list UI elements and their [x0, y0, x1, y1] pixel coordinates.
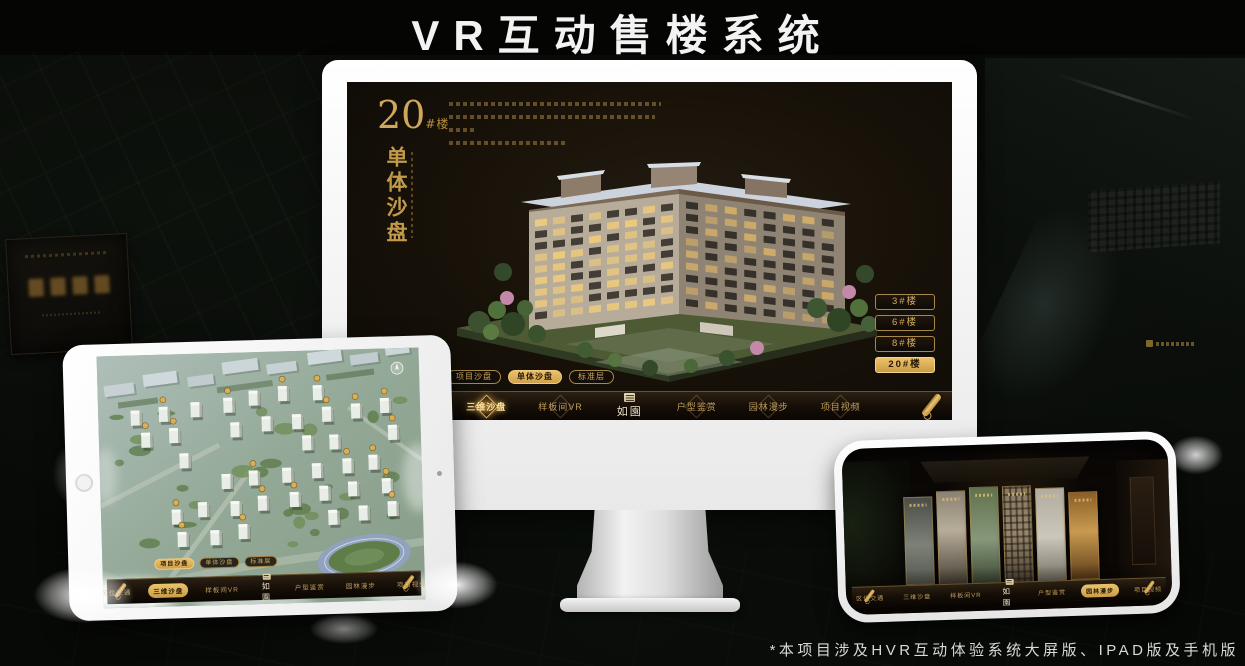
pill-project-sandbox[interactable]: 项目沙盘	[154, 558, 194, 570]
phone-device: 区位交通 三维沙盘 样板间VR 如園 户型鉴赏 园林漫步 项目视频	[833, 431, 1181, 624]
pill-standard-floor[interactable]: 标准层	[569, 370, 614, 384]
nav-item-model-room-vr[interactable]: 样板间VR	[534, 398, 587, 415]
nav-item-garden-walk[interactable]: 园林漫步	[342, 578, 380, 593]
cloud	[14, 556, 154, 634]
scroll-menu-icon[interactable]	[918, 393, 944, 419]
nav-item-project-video[interactable]: 项目视频	[817, 398, 865, 415]
nav-item-floorplan[interactable]: 户型鉴赏	[1034, 585, 1070, 599]
cloud	[296, 608, 392, 650]
seal-icon	[262, 573, 270, 579]
tablet-screen: 项目沙盘 单体沙盘 标准层 区位交通 三维沙盘 样板间VR 如園 户型鉴赏 园林…	[97, 348, 426, 609]
panel-caption	[1074, 499, 1091, 503]
panel-caption	[909, 504, 926, 508]
block-subtitle: 单体沙盘	[381, 146, 411, 246]
nav-item-label: 户型鉴赏	[295, 584, 325, 592]
brand-logo: 如園	[261, 573, 272, 602]
nav-item-label: 园林漫步	[346, 583, 376, 591]
monitor-stand-base	[560, 598, 740, 612]
building-render	[445, 132, 890, 384]
nav-item-label: 三维沙盘	[903, 594, 931, 601]
floor-button-3[interactable]: 3#楼	[875, 294, 935, 310]
monitor-stand	[577, 510, 723, 602]
nav-item-label: 样板间VR	[538, 402, 583, 412]
nav-item-label: 样板间VR	[950, 592, 982, 599]
mode-pill-group: 项目沙盘 单体沙盘 标准层	[447, 370, 614, 384]
bg-brand-logo	[1146, 340, 1196, 347]
nav-item-label: 项目视频	[1134, 587, 1162, 594]
nav-item-label: 户型鉴赏	[1038, 590, 1066, 597]
pill-project-sandbox[interactable]: 项目沙盘	[447, 370, 501, 384]
nav-item-garden-walk[interactable]: 园林漫步	[1081, 583, 1119, 597]
award-plaque	[5, 233, 133, 355]
nav-item-3d-sandbox[interactable]: 三维沙盘	[148, 583, 188, 598]
tablet-camera-icon	[437, 470, 442, 475]
nav-item-label: 户型鉴赏	[677, 402, 717, 412]
masterplan-render	[97, 348, 426, 609]
floor-button-group: 3#楼 6#楼 8#楼 20#楼	[875, 294, 935, 373]
vertical-caption-line	[411, 152, 413, 238]
page-title: VR互动售楼系统	[0, 2, 1245, 63]
nav-item-location[interactable]: 区位交通	[852, 590, 888, 604]
block-number: 20#楼	[377, 96, 449, 134]
nav-item-label: 三维沙盘	[153, 588, 183, 596]
bg-building-photo	[1088, 181, 1220, 252]
panel-caption	[975, 493, 992, 497]
brand-logo-text: 如園	[1002, 585, 1017, 607]
panel-caption	[1008, 492, 1025, 496]
nav-item-label: 三维沙盘	[466, 402, 506, 412]
nav-item-floorplan[interactable]: 户型鉴赏	[291, 579, 329, 594]
nav-item-label: 区位交通	[856, 595, 884, 602]
brand-logo-text: 如園	[262, 580, 273, 602]
brand-logo-text: 如園	[617, 403, 643, 419]
door-silhouette	[1129, 476, 1157, 565]
plaque-sub-text	[42, 311, 100, 316]
nav-item-project-video[interactable]: 项目视频	[1130, 582, 1166, 596]
nav-item-label: 园林漫步	[749, 402, 789, 412]
cloud	[398, 552, 514, 618]
nav-item-label: 样板间VR	[205, 587, 239, 595]
nav-item-3d-sandbox[interactable]: 三维沙盘	[899, 589, 935, 603]
footnote: *本项目涉及HVR互动体验系统大屏版、IPAD版及手机版	[770, 639, 1239, 660]
plaque-calligraphy	[28, 275, 110, 297]
nav-item-garden-walk[interactable]: 园林漫步	[745, 398, 793, 415]
nav-item-3d-sandbox[interactable]: 三维沙盘	[462, 398, 510, 415]
nav-item-model-room-vr[interactable]: 样板间VR	[946, 587, 986, 601]
cloud	[42, 428, 112, 520]
pill-single-sandbox[interactable]: 单体沙盘	[199, 557, 239, 569]
nav-item-floorplan[interactable]: 户型鉴赏	[673, 398, 721, 415]
nav-item-label: 项目视频	[821, 402, 861, 412]
block-number-suffix: #楼	[425, 117, 449, 131]
phone-screen: 区位交通 三维沙盘 样板间VR 如園 户型鉴赏 园林漫步 项目视频	[841, 439, 1172, 615]
plaque-small-text	[25, 251, 109, 258]
brand-logo: 如園	[617, 393, 643, 419]
scroll-bar-icon	[921, 393, 943, 418]
seal-icon	[624, 393, 635, 402]
nav-item-model-room-vr[interactable]: 样板间VR	[201, 582, 243, 597]
panel-caption	[1041, 495, 1058, 499]
cloud	[1158, 428, 1234, 482]
seal-icon	[1005, 578, 1013, 584]
floor-button-8[interactable]: 8#楼	[875, 336, 935, 352]
pill-standard-floor[interactable]: 标准层	[244, 556, 277, 568]
panel-caption	[942, 498, 959, 502]
pill-single-sandbox[interactable]: 单体沙盘	[508, 370, 562, 384]
nav-item-label: 园林漫步	[1086, 588, 1114, 595]
floor-button-20[interactable]: 20#楼	[875, 357, 935, 373]
floor-button-6[interactable]: 6#楼	[875, 315, 935, 331]
brand-logo: 如園	[1002, 578, 1017, 607]
